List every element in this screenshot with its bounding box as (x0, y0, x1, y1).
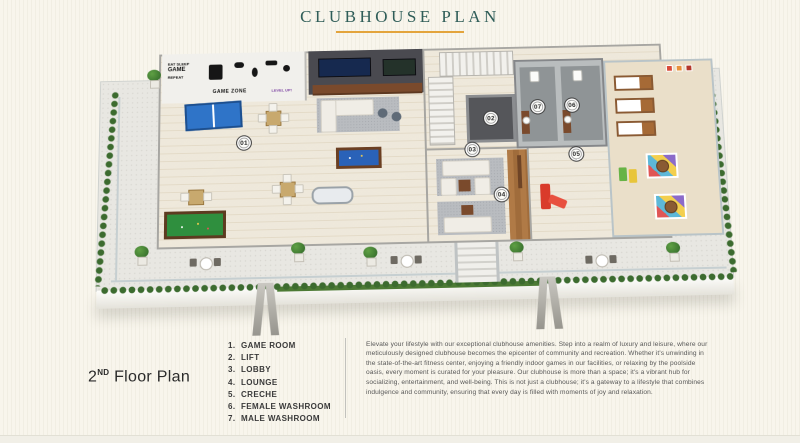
coffee-table (461, 205, 473, 215)
washroom-block (513, 58, 607, 148)
potted-plant (508, 241, 525, 259)
chair (295, 184, 304, 193)
wall-art (666, 65, 673, 72)
potted-plant (133, 246, 149, 264)
floor-plan: EAT SLEEP GAME REPEAT GAME ZONE LEVEL UP… (72, 34, 742, 338)
chair (272, 185, 281, 194)
creche-bed (615, 98, 655, 114)
card-table-set (272, 174, 302, 204)
chair (269, 125, 278, 134)
floor-ordinal: ND (97, 368, 109, 377)
support-column (255, 283, 277, 336)
decal-text-eat-sleep: EAT SLEEP (168, 61, 189, 66)
easel (619, 167, 628, 181)
headphones-decal-icon (252, 67, 258, 77)
easel (629, 169, 638, 183)
gorilla-decal-icon (209, 64, 223, 79)
pool-table (336, 147, 382, 169)
support-column (537, 276, 561, 329)
chair (180, 193, 189, 202)
skateboard-decal-icon (266, 60, 278, 65)
tv-screen (383, 58, 417, 76)
potted-plant (290, 242, 306, 260)
decal-text-repeat: REPEAT (168, 75, 184, 80)
chair (280, 113, 289, 122)
legend-divider (345, 338, 346, 418)
armchair (474, 177, 490, 195)
sofa (321, 100, 337, 133)
creche-room (603, 58, 724, 237)
bottom-band (0, 435, 800, 443)
card-table (266, 111, 282, 127)
ping-pong-table (184, 100, 242, 131)
toilet (572, 70, 582, 82)
cafe-set (190, 254, 220, 271)
card-table-set (258, 103, 288, 132)
armchair (441, 178, 457, 196)
cafe-set (585, 251, 616, 268)
decal-text-game-zone: GAME ZONE (213, 89, 247, 95)
page-title: CLUBHOUSE PLAN (0, 7, 800, 27)
chair (269, 103, 278, 112)
page-header: CLUBHOUSE PLAN (0, 7, 800, 33)
footer: 2ND Floor Plan 1.GAME ROOM 2.LIFT 3.LOBB… (0, 330, 800, 443)
decal-text-level-up: LEVEL UP! (271, 88, 291, 93)
legend-item: 2.LIFT (228, 352, 331, 364)
card-table (280, 182, 296, 198)
toilet (529, 71, 539, 83)
controller-decal-icon (234, 62, 244, 68)
floor-plan-label: 2ND Floor Plan (88, 368, 190, 386)
chair (283, 196, 292, 205)
button-decal-icon (283, 65, 290, 72)
chair (203, 192, 212, 201)
staircase (439, 51, 514, 77)
entry-stairs (454, 242, 499, 283)
game-zone-decal-wall: EAT SLEEP GAME REPEAT GAME ZONE LEVEL UP… (162, 51, 307, 103)
legend-list: 1.GAME ROOM 2.LIFT 3.LOBBY 4.LOUNGE 5.CR… (228, 340, 331, 425)
potted-plant (362, 247, 378, 265)
title-underline (336, 31, 464, 33)
kids-table (656, 160, 670, 173)
wall-art (685, 65, 692, 72)
card-table-set (180, 181, 210, 211)
wall-art (676, 65, 683, 72)
legend-item: 4.LOUNGE (228, 377, 331, 389)
chair (283, 174, 292, 183)
chair (258, 114, 267, 123)
legend-item: 6.FEMALE WASHROOM (228, 401, 331, 413)
tv-screen (318, 57, 371, 77)
snooker-table (164, 210, 226, 239)
coffee-table (458, 180, 470, 192)
legend-item: 5.CRECHE (228, 389, 331, 401)
slide (540, 183, 568, 221)
creche-bed (614, 75, 654, 91)
card-table (188, 189, 204, 205)
description-text: Elevate your lifestyle with our exceptio… (366, 340, 711, 398)
floor-number: 2 (88, 368, 97, 385)
cafe-set (390, 252, 420, 269)
staircase (428, 76, 455, 145)
potted-plant (665, 242, 682, 260)
decal-text-game: GAME (168, 67, 186, 73)
legend-item: 7.MALE WASHROOM (228, 413, 331, 425)
potted-plant (146, 70, 162, 87)
sink (564, 116, 572, 124)
sofa (442, 160, 490, 177)
legend-item: 1.GAME ROOM (228, 340, 331, 352)
legend-item: 3.LOBBY (228, 364, 331, 376)
floor-text: Floor Plan (109, 368, 190, 385)
sofa (444, 216, 492, 233)
creche-bed (616, 120, 656, 136)
floor-plan-render: EAT SLEEP GAME REPEAT GAME ZONE LEVEL UP… (69, 35, 749, 346)
air-hockey-table (312, 186, 354, 205)
